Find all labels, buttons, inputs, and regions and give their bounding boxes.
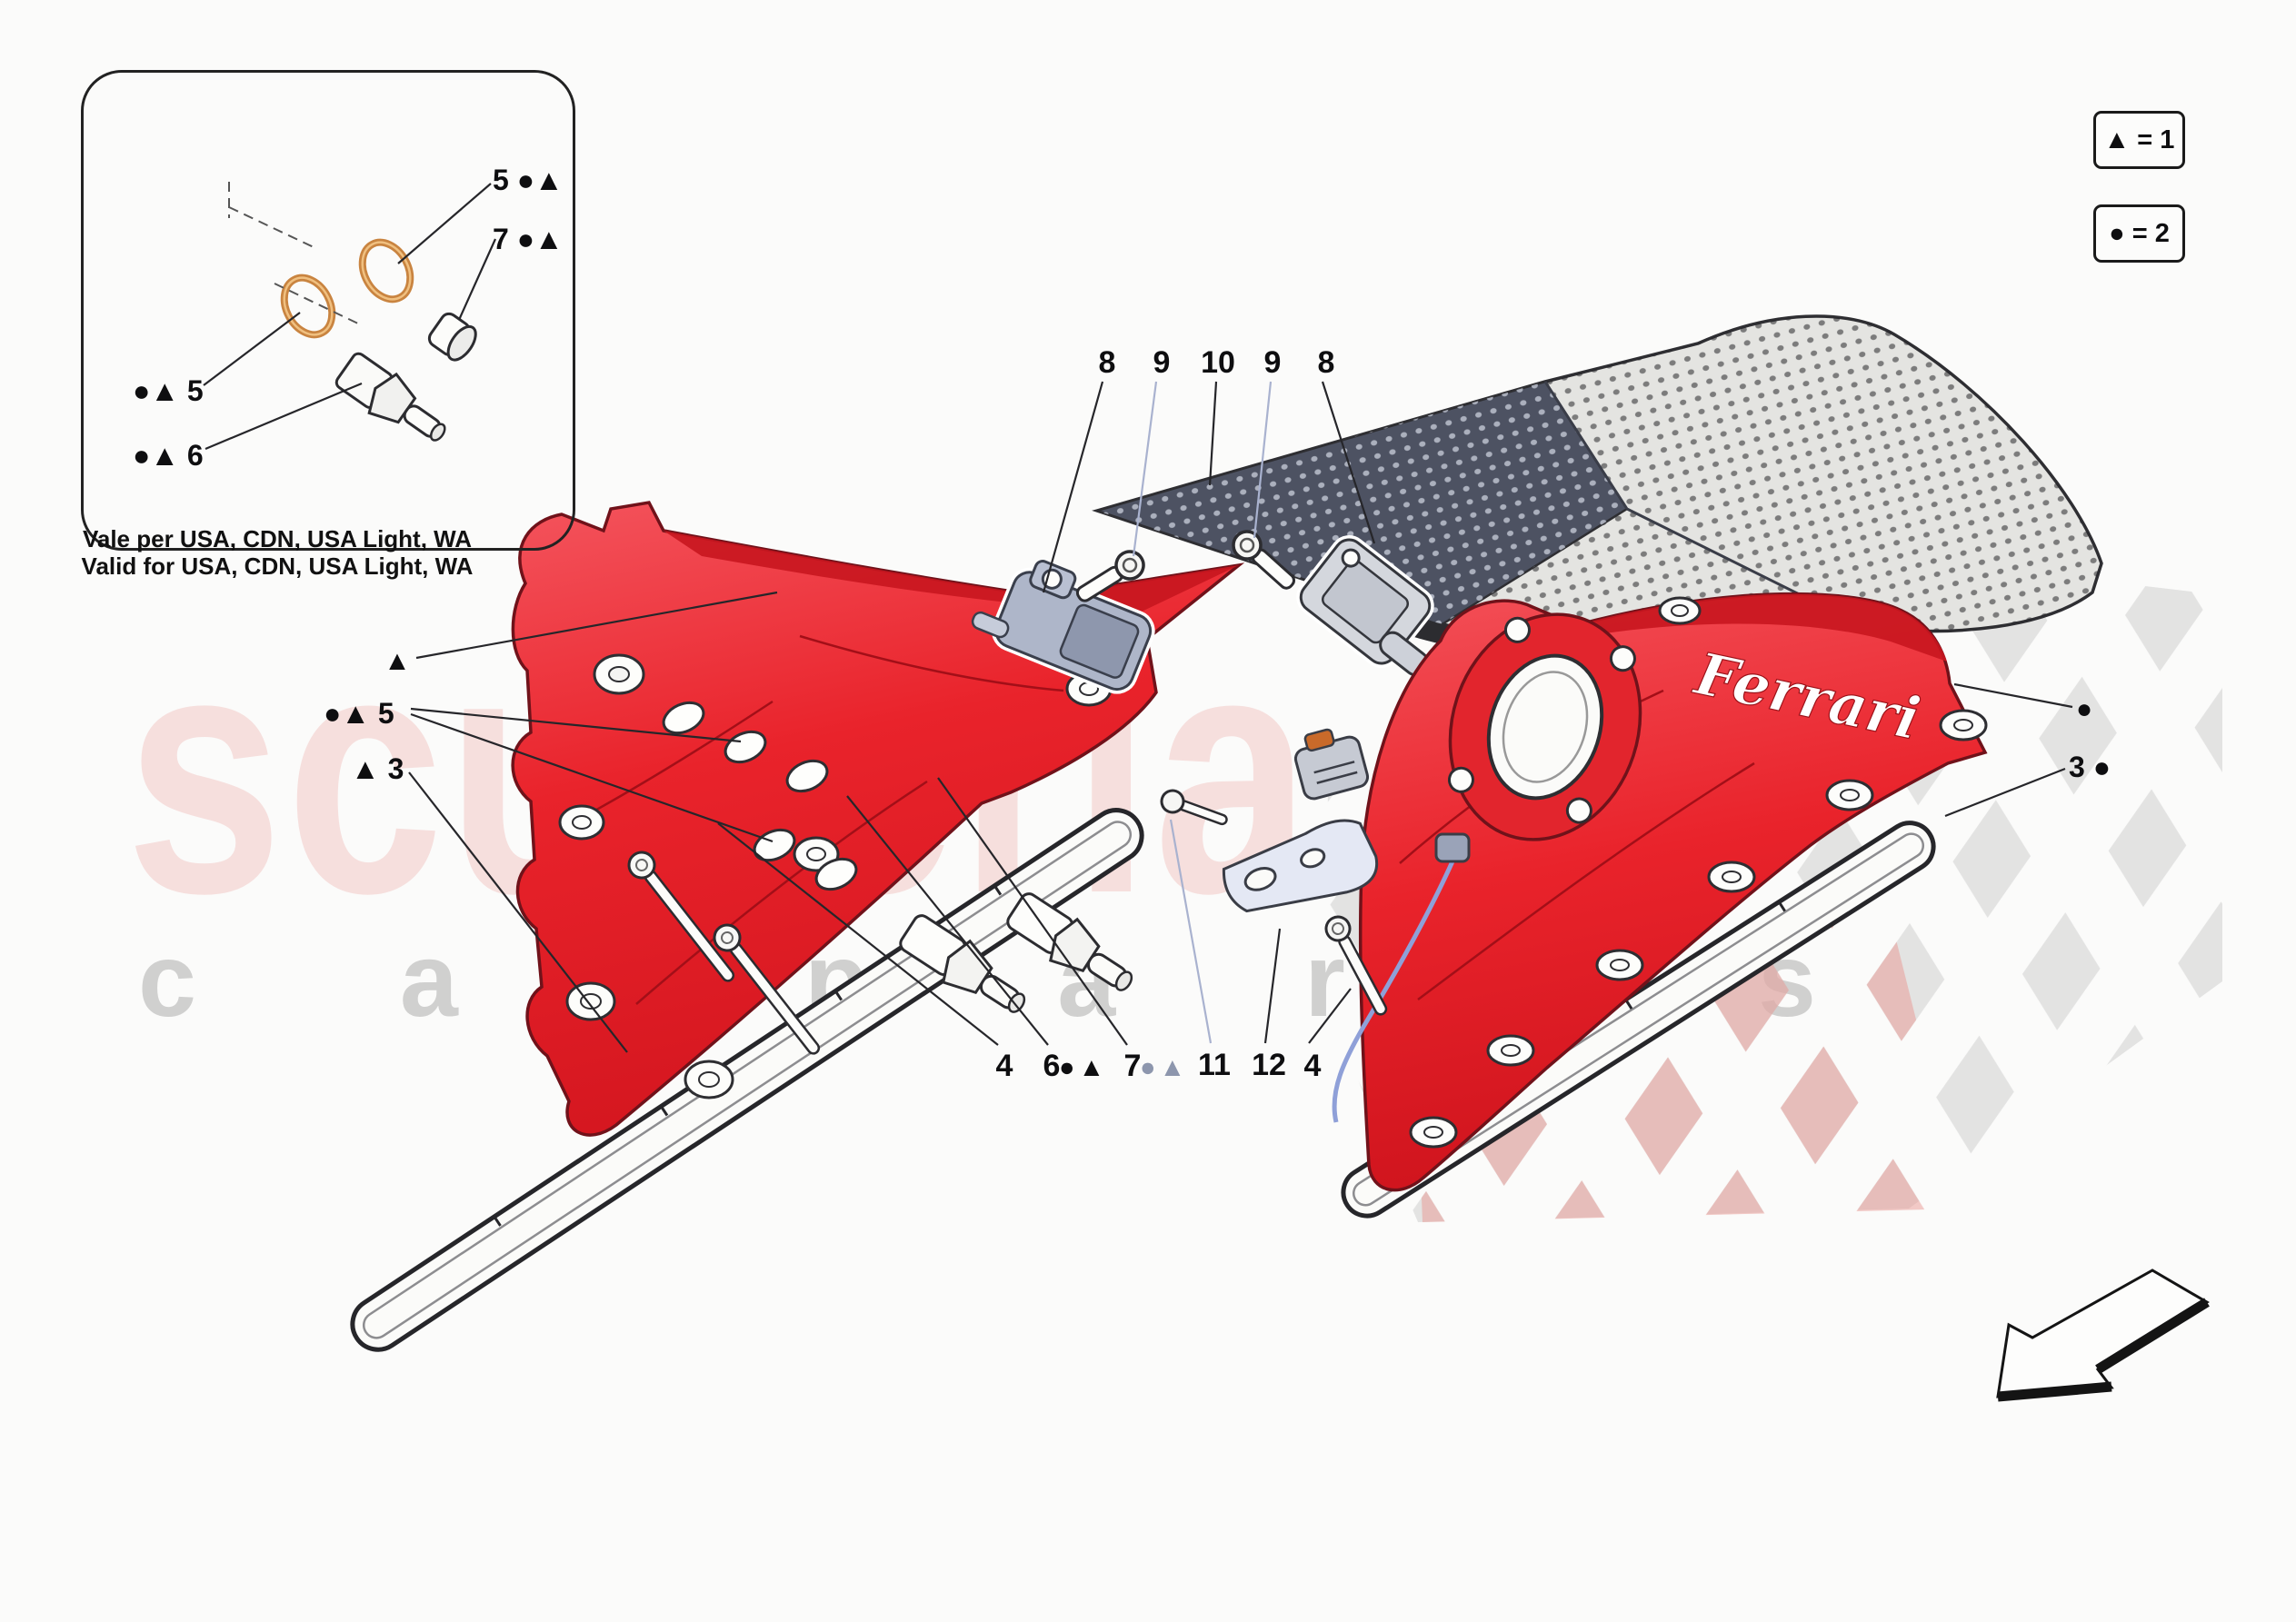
callout-8-left: 8 bbox=[1099, 347, 1116, 378]
callout-4-right: 4 bbox=[1304, 1050, 1322, 1081]
inset-label-cap: 7 ●▲ bbox=[493, 224, 564, 254]
callout-4-left: 4 bbox=[996, 1050, 1013, 1081]
callout-8-right: 8 bbox=[1318, 347, 1335, 378]
callout-7-symbols: ●▲ bbox=[1140, 1055, 1189, 1081]
callout-6: 6 bbox=[1043, 1050, 1061, 1081]
inset-note-line2: Valid for USA, CDN, USA Light, WA bbox=[73, 552, 482, 581]
heat-shield bbox=[1097, 316, 2101, 669]
inset-usa-box bbox=[81, 70, 575, 551]
callout-12: 12 bbox=[1252, 1050, 1286, 1080]
callout-11: 11 bbox=[1198, 1050, 1231, 1080]
callout-6-symbols: ●▲ bbox=[1059, 1055, 1108, 1081]
callout-gasket-3-right: 3 ● bbox=[2069, 752, 2111, 781]
plug-sensor-6b bbox=[1002, 888, 1143, 1004]
legend-triangle: ▲ = 1 bbox=[2093, 111, 2185, 169]
callout-cover-triangle: ▲ bbox=[384, 648, 411, 675]
clip-screw-11 bbox=[1159, 788, 1231, 831]
callout-7: 7 bbox=[1124, 1050, 1142, 1081]
callout-9-right: 9 bbox=[1264, 347, 1282, 378]
inset-note-line1: Vale per USA, CDN, USA Light, WA bbox=[73, 525, 482, 553]
parts-diagram-page: scuderia c a r p a r t s bbox=[0, 0, 2296, 1622]
inset-label-oring-left: ●▲ 5 bbox=[133, 376, 204, 405]
direction-arrow-icon bbox=[1998, 1270, 2207, 1397]
inset-label-oring-top: 5 ●▲ bbox=[493, 165, 564, 194]
callout-9-left: 9 bbox=[1153, 347, 1171, 378]
callout-gasket-3-left: ▲ 3 bbox=[351, 754, 404, 783]
legend-circle: ● = 2 bbox=[2093, 204, 2185, 263]
callout-cover-circle: ● bbox=[2076, 696, 2092, 723]
callout-washers-5: ●▲ 5 bbox=[324, 699, 394, 728]
callout-10: 10 bbox=[1201, 347, 1235, 378]
inset-label-sensor: ●▲ 6 bbox=[133, 441, 204, 470]
